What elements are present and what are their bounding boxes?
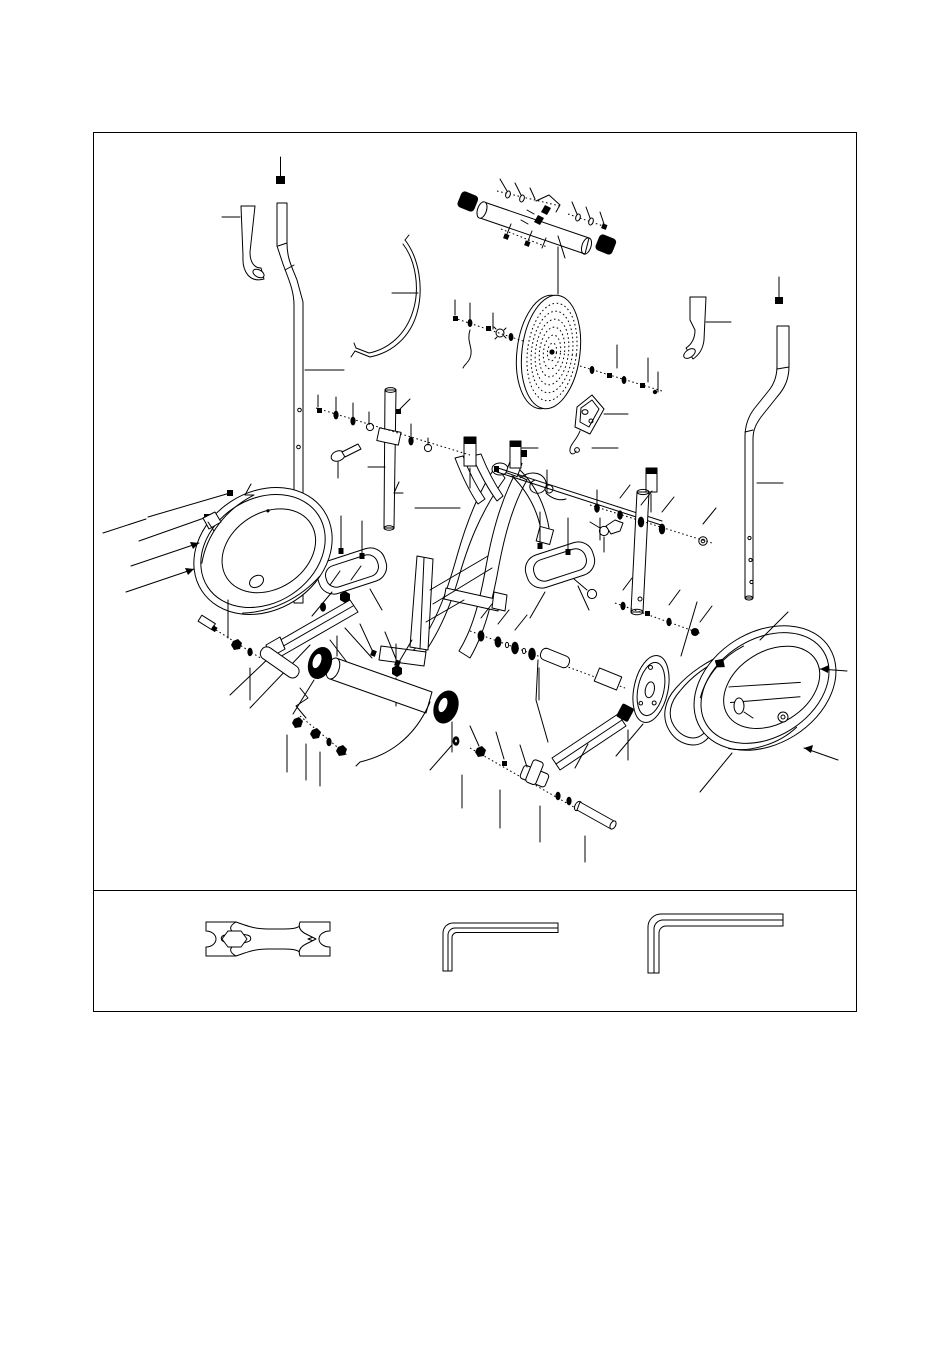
tool-allen-key-large <box>648 914 783 973</box>
idler-strap-arc <box>351 235 420 357</box>
right-chain-cover <box>671 600 859 792</box>
top-handlebar-assembly <box>456 179 617 258</box>
exploded-parts-diagram <box>0 0 950 1352</box>
long-bolt <box>573 800 617 830</box>
handlebar-grip-right <box>594 233 617 256</box>
flywheel-axle-chain-right <box>580 345 662 394</box>
bend-mark <box>394 482 403 493</box>
front-roller-tube <box>293 624 463 766</box>
right-upright-tube <box>745 277 789 600</box>
sensor-bracket <box>570 395 628 454</box>
left-handlebar-small-tube <box>222 206 265 280</box>
flywheel-axle-chain-left <box>453 300 523 368</box>
tension-knob <box>590 520 623 552</box>
wrench-hex-hole <box>222 931 247 947</box>
t-joint-block <box>519 759 549 788</box>
crank-washer-chain <box>470 604 625 742</box>
handlebar-tube <box>475 201 593 256</box>
tool-wrench <box>206 922 330 956</box>
right-swing-link <box>574 485 716 636</box>
right-pedal <box>521 512 600 618</box>
handlebar-fastener-chain-right <box>568 202 608 230</box>
frame-nut <box>392 665 402 677</box>
tool-allen-key-small <box>443 923 558 971</box>
swing-link-chain-lower <box>615 578 712 636</box>
handlebar-grip-left <box>456 190 479 213</box>
perforated-flywheel <box>453 247 662 412</box>
right-rear-bent-tube <box>682 297 731 360</box>
left-swing-post <box>316 388 470 531</box>
curved-leader <box>356 702 430 766</box>
rear-link-bar <box>552 703 634 770</box>
swing-link-chain-upper <box>590 485 716 545</box>
pull-ring <box>587 589 596 598</box>
left-chain-cover <box>103 462 356 640</box>
t-handle-bolt <box>330 444 361 478</box>
manual-page <box>0 0 950 1352</box>
roller-cap-right <box>429 687 463 727</box>
bottom-axle-chain <box>430 703 634 862</box>
